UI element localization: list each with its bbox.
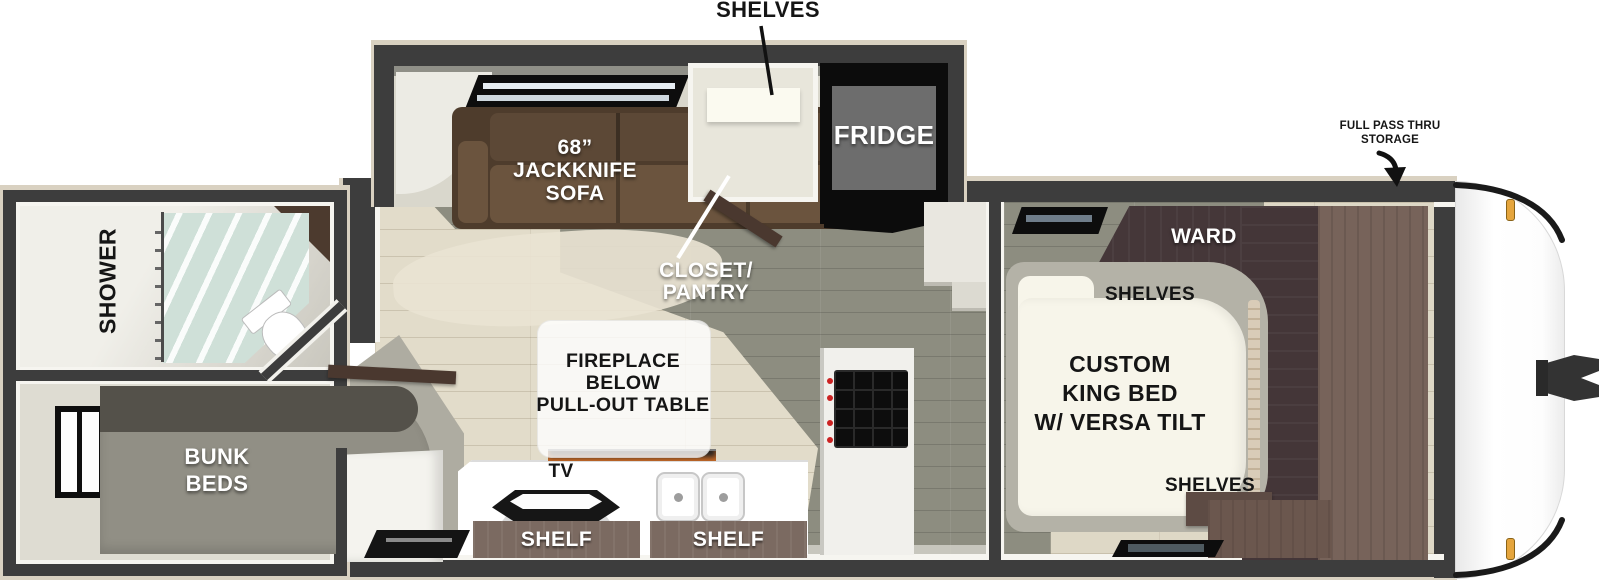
front-cap [1455, 181, 1565, 579]
closet-pantry-niche [688, 63, 818, 202]
shelf-left: SHELF [473, 521, 640, 558]
cooktop [834, 370, 908, 448]
kitchen-sink-left [656, 472, 700, 522]
pass-thru-arrow [1379, 153, 1396, 170]
ward-label: WARD [1171, 226, 1237, 247]
stove-knob [827, 437, 833, 443]
king-bed-label: CUSTOMKING BEDW/ VERSA TILT [1034, 350, 1205, 437]
shelves-annotation-label: SHELVES [716, 0, 820, 21]
stove-knob [827, 420, 833, 426]
bed-foot-shelf-large [1208, 500, 1332, 558]
bunk-beds-top [100, 386, 418, 432]
bunk-window-pane [82, 412, 99, 492]
bunk-label: BUNKBEDS [184, 443, 249, 497]
bed-shelves-top-label: SHELVES [1105, 285, 1195, 304]
marker-light-top [1506, 199, 1515, 221]
overhead-cabinet [924, 202, 986, 286]
stove-knob [827, 378, 833, 384]
bedroom-floor-vent [1112, 540, 1224, 557]
entry-step [364, 530, 470, 558]
pass-thru-label: FULL PASS THRUSTORAGE [1340, 119, 1441, 147]
living-window [465, 75, 689, 109]
fridge-label: FRIDGE [834, 122, 935, 148]
bunk-window-pane [61, 412, 77, 492]
shower-label: SHOWER [97, 228, 120, 334]
rear-divider-wall [16, 367, 334, 384]
overhead-cabinet-lower [952, 282, 986, 311]
main-right-wall [1434, 181, 1457, 578]
kitchen-sink-right [701, 472, 745, 522]
closet-pantry-label: CLOSET/PANTRY [659, 260, 753, 304]
tv-label: TV [548, 462, 573, 481]
tv-screen [510, 494, 602, 509]
closet-shelf [707, 88, 800, 122]
stove-knob [827, 395, 833, 401]
fireplace-label: FIREPLACEBELOWPULL-OUT TABLE [536, 350, 709, 416]
floor-vent-inner [1128, 544, 1204, 552]
bunk-window [55, 406, 105, 498]
sofa-label: 68”JACKKNIFESOFA [513, 136, 637, 205]
bedroom-vent-slat [1026, 215, 1092, 222]
main-bottom-wall [339, 559, 1457, 578]
entry-step-tread [386, 538, 452, 542]
bedroom-divider-wall [986, 202, 1004, 560]
window-slat [477, 95, 669, 101]
shower-rod [161, 212, 164, 362]
wardrobe-column-light [1318, 206, 1428, 560]
bedroom-vent [1012, 207, 1108, 234]
entry-partition-edge [336, 448, 347, 562]
window-slat [483, 83, 675, 89]
shelf-right-label: SHELF [693, 528, 764, 552]
main-left-lining [375, 202, 380, 342]
floorplan-canvas: 68”JACKKNIFESOFA FRIDGE SHELVES FIREPLAC… [0, 0, 1600, 580]
main-top-wall [938, 181, 1457, 202]
shelf-right: SHELF [650, 521, 807, 558]
sofa-arm [458, 141, 488, 223]
marker-light-bottom [1506, 538, 1515, 560]
shelf-left-label: SHELF [521, 528, 592, 552]
